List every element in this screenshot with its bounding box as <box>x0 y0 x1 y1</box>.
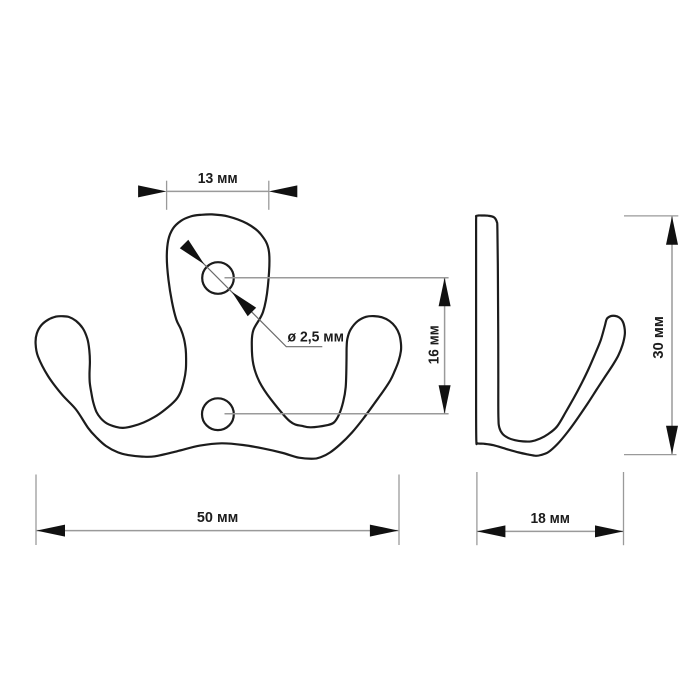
svg-text:50 мм: 50 мм <box>197 509 238 526</box>
svg-text:30 мм: 30 мм <box>650 316 667 359</box>
svg-text:ø 2,5 мм: ø 2,5 мм <box>288 328 345 345</box>
svg-text:13 мм: 13 мм <box>198 170 238 187</box>
svg-text:18 мм: 18 мм <box>530 510 570 527</box>
svg-text:16 мм: 16 мм <box>426 325 443 364</box>
